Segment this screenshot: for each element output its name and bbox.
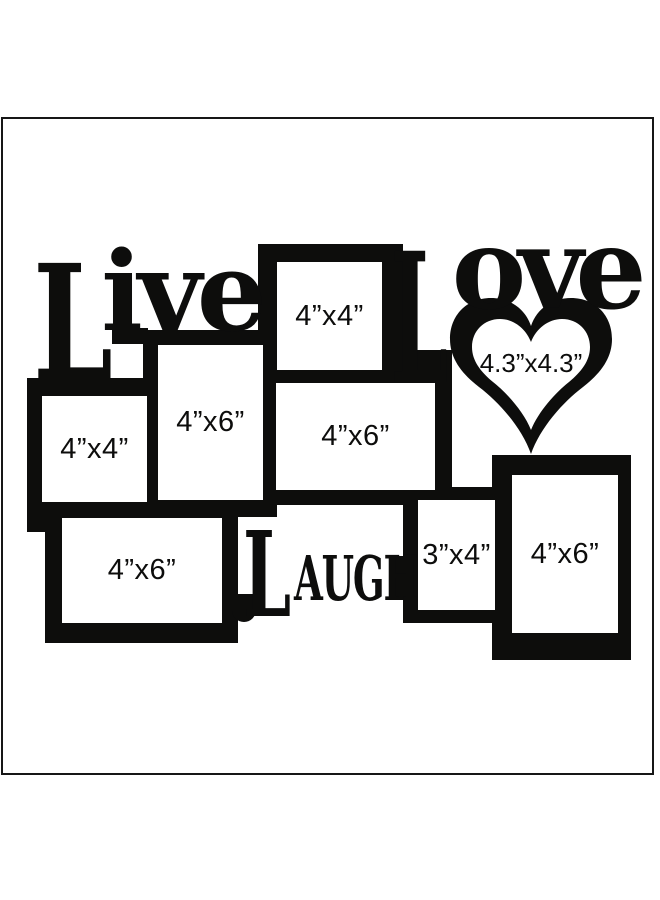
word-love-initial: L bbox=[391, 230, 448, 410]
photo-opening-bottom-left: 4”x6” bbox=[62, 518, 222, 623]
word-laugh-rest: AUGH bbox=[294, 548, 417, 610]
word-live: L ive bbox=[33, 245, 262, 403]
product-image: 4”x4” 4”x4” 4”x6” 4”x6” 4”x6” 3”x4” 4”x6… bbox=[0, 0, 660, 900]
word-love: L ove bbox=[391, 230, 639, 410]
word-laugh: L AUGH bbox=[243, 516, 500, 634]
frame-size-label: 4”x4” bbox=[60, 433, 129, 466]
word-love-rest: ove bbox=[452, 214, 639, 326]
word-laugh-initial: L bbox=[243, 516, 291, 634]
frame-size-label: 4”x6” bbox=[321, 420, 390, 453]
frame-size-label: 4”x4” bbox=[295, 300, 364, 333]
photo-opening-top-square: 4”x4” bbox=[277, 262, 382, 370]
frame-size-label: 4”x6” bbox=[176, 406, 245, 439]
word-live-initial: L bbox=[33, 245, 113, 403]
word-live-rest: ive bbox=[101, 237, 262, 347]
frame-size-label: 4”x6” bbox=[531, 538, 600, 571]
photo-opening-bottom-right: 4”x6” bbox=[512, 475, 618, 633]
frame-connector-left bbox=[27, 500, 57, 532]
frame-size-label: 4”x6” bbox=[108, 554, 177, 587]
